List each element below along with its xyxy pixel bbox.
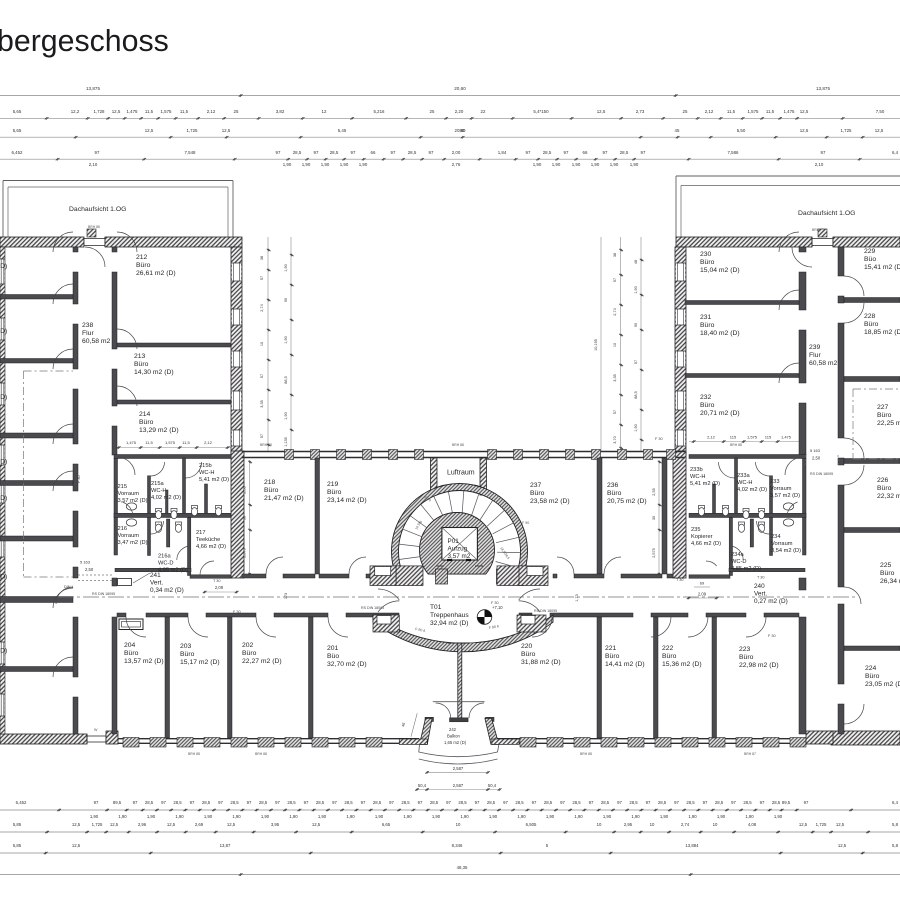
- svg-text:28,5: 28,5: [543, 150, 552, 155]
- svg-text:97: 97: [247, 800, 252, 805]
- svg-text:10: 10: [597, 822, 602, 827]
- svg-text:22,27 m2 (D): 22,27 m2 (D): [242, 658, 282, 665]
- svg-text:2,50: 2,50: [812, 456, 821, 461]
- svg-text:97: 97: [275, 800, 280, 805]
- svg-text:10: 10: [260, 342, 264, 346]
- svg-text:5,65: 5,65: [13, 109, 22, 114]
- svg-text:4,85 m2 (D): 4,85 m2 (D): [731, 566, 761, 572]
- svg-text:Luftraum: Luftraum: [447, 470, 475, 477]
- svg-text:15,41 m2 (D): 15,41 m2 (D): [864, 264, 900, 271]
- svg-text:10: 10: [613, 343, 617, 347]
- svg-text:25: 25: [430, 109, 435, 114]
- svg-text:97: 97: [391, 150, 396, 155]
- svg-text:28,5: 28,5: [743, 800, 752, 805]
- svg-text:1,90: 1,90: [284, 264, 288, 271]
- svg-text:224: 224: [865, 665, 877, 672]
- svg-text:2,74: 2,74: [260, 304, 264, 311]
- svg-text:11,5: 11,5: [145, 109, 154, 114]
- svg-text:214: 214: [139, 411, 151, 418]
- svg-text:203: 203: [180, 643, 192, 650]
- svg-text:28,5: 28,5: [408, 150, 417, 155]
- svg-text:WC-H: WC-H: [690, 474, 705, 480]
- svg-text:m2 (D): m2 (D): [0, 394, 7, 401]
- svg-text:1,90: 1,90: [634, 424, 638, 431]
- svg-text:4,02 m2 (D): 4,02 m2 (D): [151, 495, 181, 501]
- svg-text:28,5: 28,5: [629, 800, 638, 805]
- svg-text:3,57 m2 (D): 3,57 m2 (D): [770, 493, 800, 499]
- svg-text:28,5: 28,5: [430, 800, 439, 805]
- svg-text:236: 236: [607, 482, 619, 489]
- svg-text:1,728: 1,728: [94, 109, 106, 114]
- svg-text:F 30: F 30: [77, 475, 81, 483]
- svg-text:18,40 m2 (D): 18,40 m2 (D): [700, 330, 740, 337]
- svg-text:2,587: 2,587: [453, 766, 464, 771]
- svg-text:2,55: 2,55: [652, 488, 656, 495]
- svg-text:233: 233: [770, 479, 780, 485]
- svg-text:20,60: 20,60: [454, 86, 466, 91]
- svg-text:F 30: F 30: [655, 437, 663, 441]
- svg-text:Vorraum: Vorraum: [770, 486, 792, 492]
- svg-text:5,85: 5,85: [13, 822, 22, 827]
- svg-text:Büro: Büro: [607, 490, 622, 497]
- svg-text:1,90: 1,90: [340, 162, 349, 167]
- svg-text:1,73: 1,73: [575, 594, 579, 601]
- svg-text:13,875: 13,875: [86, 86, 100, 91]
- svg-text:1,90: 1,90: [321, 162, 330, 167]
- svg-text:Vorraum: Vorraum: [118, 533, 140, 539]
- svg-text:97: 97: [603, 150, 608, 155]
- svg-text:1,90: 1,90: [346, 814, 355, 819]
- svg-text:5,45: 5,45: [338, 128, 347, 133]
- svg-text:1,90: 1,90: [572, 162, 581, 167]
- svg-text:12,5: 12,5: [800, 109, 809, 114]
- svg-text:38: 38: [260, 256, 264, 260]
- svg-text:12,5: 12,5: [227, 822, 236, 827]
- svg-text:2,69: 2,69: [195, 822, 204, 827]
- svg-text:5,8: 5,8: [892, 822, 899, 827]
- svg-text:Büo: Büo: [327, 653, 339, 660]
- svg-text:115: 115: [730, 435, 737, 440]
- svg-text:1,90: 1,90: [90, 814, 99, 819]
- svg-text:30: 30: [652, 516, 656, 520]
- svg-text:1,90: 1,90: [517, 814, 526, 819]
- svg-text:22,32 m2 (D): 22,32 m2 (D): [877, 493, 900, 500]
- svg-text:11,5: 11,5: [145, 440, 153, 445]
- svg-text:1,90: 1,90: [403, 814, 412, 819]
- svg-text:69: 69: [700, 581, 705, 586]
- svg-text:2,74: 2,74: [681, 822, 690, 827]
- svg-text:226: 226: [877, 477, 889, 484]
- svg-text:Büro: Büro: [327, 489, 342, 496]
- svg-text:23,58 m2 (D): 23,58 m2 (D): [530, 498, 570, 505]
- svg-text:66: 66: [583, 150, 588, 155]
- svg-text:12: 12: [322, 109, 327, 114]
- svg-text:1,90: 1,90: [717, 814, 726, 819]
- svg-text:88,5: 88,5: [284, 376, 288, 383]
- svg-text:97: 97: [133, 800, 138, 805]
- svg-text:T01: T01: [430, 604, 442, 611]
- svg-text:1,65 m2 (D): 1,65 m2 (D): [444, 740, 467, 745]
- svg-text:97: 97: [804, 800, 809, 805]
- svg-text:215b: 215b: [199, 463, 212, 469]
- svg-text:38: 38: [613, 253, 617, 257]
- svg-text:Büro: Büro: [264, 487, 279, 494]
- svg-text:6,65: 6,65: [382, 822, 391, 827]
- svg-text:2,10: 2,10: [815, 162, 824, 167]
- svg-text:2,12: 2,12: [204, 440, 213, 445]
- svg-text:97: 97: [94, 800, 99, 805]
- svg-text:12,5: 12,5: [72, 822, 81, 827]
- svg-text:97: 97: [532, 800, 537, 805]
- svg-text:1,90: 1,90: [147, 814, 156, 819]
- svg-text:3,70: 3,70: [613, 436, 617, 443]
- svg-text:1,575: 1,575: [748, 109, 760, 114]
- svg-text:BRH 88: BRH 88: [580, 752, 592, 756]
- svg-text:2,12: 2,12: [705, 109, 714, 114]
- svg-text:1,475: 1,475: [781, 435, 792, 440]
- svg-text:1,90: 1,90: [289, 814, 298, 819]
- svg-text:13,29 m2 (D): 13,29 m2 (D): [139, 427, 179, 434]
- svg-text:5,4*150: 5,4*150: [533, 109, 549, 114]
- svg-text:227: 227: [877, 404, 889, 411]
- svg-text:1,90: 1,90: [489, 814, 498, 819]
- svg-text:4,66 m2 (D): 4,66 m2 (D): [196, 544, 226, 550]
- svg-text:6,452: 6,452: [16, 800, 27, 805]
- svg-text:173: 173: [284, 593, 288, 599]
- svg-text:WC-D: WC-D: [731, 559, 746, 565]
- svg-text:1,725: 1,725: [841, 128, 853, 133]
- svg-text:45: 45: [675, 128, 680, 133]
- svg-text:Vorraum: Vorraum: [118, 491, 140, 497]
- svg-text:228: 228: [864, 313, 876, 320]
- svg-text:2,50: 2,50: [85, 567, 94, 572]
- svg-text:1,475: 1,475: [784, 109, 796, 114]
- svg-text:Büo: Büo: [864, 256, 876, 263]
- svg-text:23,14 m2 (D): 23,14 m2 (D): [327, 497, 367, 504]
- svg-text:222: 222: [662, 645, 674, 652]
- svg-text:12,5: 12,5: [799, 822, 808, 827]
- svg-text:T 30: T 30: [676, 578, 684, 582]
- svg-text:1,90: 1,90: [591, 162, 600, 167]
- svg-text:1,135: 1,135: [284, 437, 288, 447]
- svg-text:25: 25: [234, 109, 239, 114]
- svg-text:28,5: 28,5: [601, 800, 610, 805]
- svg-text:12,2: 12,2: [71, 109, 80, 114]
- svg-text:3,95: 3,95: [271, 822, 280, 827]
- svg-text:Büro: Büro: [700, 322, 715, 329]
- svg-text:28,5: 28,5: [772, 800, 781, 805]
- svg-text:23,05 m2 (D): 23,05 m2 (D): [865, 681, 900, 688]
- svg-text:22,98 m2 (D): 22,98 m2 (D): [739, 662, 779, 669]
- svg-text:Büro: Büro: [180, 651, 195, 658]
- svg-text:97: 97: [351, 150, 356, 155]
- svg-text:218: 218: [264, 479, 276, 486]
- svg-text:28,5: 28,5: [373, 800, 382, 805]
- svg-text:97: 97: [560, 800, 565, 805]
- svg-text:97: 97: [161, 800, 166, 805]
- svg-text:2,74: 2,74: [613, 308, 617, 315]
- svg-text:3,35: 3,35: [260, 400, 264, 407]
- svg-text:12,5: 12,5: [72, 843, 81, 848]
- svg-text:97: 97: [332, 800, 337, 805]
- svg-text:Büro: Büro: [139, 419, 154, 426]
- svg-text:15,04 m2 (D): 15,04 m2 (D): [700, 267, 740, 274]
- svg-text:10: 10: [456, 822, 461, 827]
- svg-text:BRH 88: BRH 88: [452, 443, 464, 447]
- svg-text:Treppenhaus: Treppenhaus: [430, 612, 469, 619]
- svg-text:0,27 m2 (D): 0,27 m2 (D): [754, 598, 788, 605]
- svg-text:90: 90: [634, 323, 638, 327]
- svg-text:57: 57: [260, 434, 264, 438]
- svg-text:1,90: 1,90: [432, 814, 441, 819]
- svg-text:7,50: 7,50: [876, 109, 885, 114]
- svg-text:1,90: 1,90: [745, 814, 754, 819]
- svg-text:3,54 m2 (D): 3,54 m2 (D): [771, 548, 801, 554]
- svg-text:3,57 m2: 3,57 m2: [448, 553, 471, 560]
- svg-text:10: 10: [713, 822, 718, 827]
- svg-text:97: 97: [821, 150, 826, 155]
- svg-text:1,90: 1,90: [359, 162, 368, 167]
- svg-text:1,90: 1,90: [546, 814, 555, 819]
- svg-text:2,09: 2,09: [215, 585, 224, 590]
- svg-text:28,5: 28,5: [287, 800, 296, 805]
- svg-text:5 163: 5 163: [80, 560, 91, 565]
- svg-text:T 30: T 30: [213, 579, 221, 583]
- svg-text:97: 97: [617, 800, 622, 805]
- svg-text:14,30 m2 (D): 14,30 m2 (D): [134, 369, 174, 376]
- svg-text:15,17 m2 (D): 15,17 m2 (D): [180, 659, 220, 666]
- svg-text:BRH 88: BRH 88: [188, 752, 200, 756]
- svg-text:Büro: Büro: [864, 321, 879, 328]
- svg-text:2,10: 2,10: [89, 162, 98, 167]
- svg-text:1,475: 1,475: [127, 109, 139, 114]
- svg-text:W: W: [94, 728, 98, 732]
- svg-text:1,90: 1,90: [603, 814, 612, 819]
- svg-text:26,61 m2 (D): 26,61 m2 (D): [136, 270, 176, 277]
- svg-text:Vert.: Vert.: [150, 580, 163, 587]
- svg-text:97: 97: [429, 150, 434, 155]
- svg-text:RS DIN 18095: RS DIN 18095: [361, 606, 384, 610]
- svg-text:97: 97: [703, 800, 708, 805]
- svg-text:26,34 m2 (D): 26,34 m2 (D): [880, 578, 900, 585]
- svg-text:97: 97: [190, 800, 195, 805]
- svg-text:12,5: 12,5: [800, 128, 809, 133]
- svg-text:97: 97: [446, 800, 451, 805]
- svg-text:97: 97: [314, 150, 319, 155]
- svg-text:60,58 m2: 60,58 m2: [809, 360, 838, 367]
- svg-text:13,87: 13,87: [220, 843, 231, 848]
- svg-text:6,4: 6,4: [892, 150, 899, 155]
- svg-text:28,5: 28,5: [293, 150, 302, 155]
- svg-text:5,41 m2 (D): 5,41 m2 (D): [199, 477, 229, 483]
- svg-text:57: 57: [260, 374, 264, 378]
- svg-text:230: 230: [700, 251, 712, 258]
- svg-text:10,195: 10,195: [594, 339, 598, 351]
- svg-text:60,58 m2: 60,58 m2: [82, 338, 111, 345]
- svg-text:234a: 234a: [731, 552, 744, 558]
- svg-text:1,575: 1,575: [747, 435, 758, 440]
- svg-text:1,725: 1,725: [816, 822, 827, 827]
- svg-text:3,57 m2 (D): 3,57 m2 (D): [118, 498, 148, 504]
- svg-text:90: 90: [460, 128, 465, 133]
- svg-text:1,725: 1,725: [187, 128, 199, 133]
- svg-text:1,90: 1,90: [204, 814, 213, 819]
- svg-text:28,5: 28,5: [458, 800, 467, 805]
- svg-text:Büro: Büro: [877, 412, 892, 419]
- svg-text:1,575: 1,575: [161, 109, 173, 114]
- svg-text:223: 223: [739, 646, 751, 653]
- svg-text:28,5: 28,5: [316, 800, 325, 805]
- svg-text:97: 97: [760, 800, 765, 805]
- svg-text:Vert.: Vert.: [754, 591, 767, 598]
- svg-text:2,587: 2,587: [453, 783, 464, 788]
- svg-text:BRH 87: BRH 87: [744, 752, 756, 756]
- svg-text:WC-D: WC-D: [158, 561, 173, 567]
- svg-text:DIN L: DIN L: [64, 585, 74, 589]
- svg-text:4,85 m2 (D): 4,85 m2 (D): [158, 568, 188, 574]
- svg-text:Teeküche: Teeküche: [196, 537, 220, 543]
- svg-text:204: 204: [124, 642, 136, 649]
- svg-text:3,47 m2 (D): 3,47 m2 (D): [118, 540, 148, 546]
- svg-text:m2 (D): m2 (D): [0, 459, 7, 466]
- svg-text:212: 212: [136, 254, 148, 261]
- svg-text:Büro: Büro: [242, 650, 257, 657]
- svg-text:1,90: 1,90: [630, 162, 639, 167]
- svg-text:10: 10: [650, 822, 655, 827]
- svg-text:11,5: 11,5: [727, 109, 736, 114]
- svg-text:219: 219: [327, 481, 339, 488]
- svg-text:BRH 88: BRH 88: [255, 752, 267, 756]
- svg-text:4,02 m2 (D): 4,02 m2 (D): [737, 487, 767, 493]
- svg-text:12,5: 12,5: [167, 822, 176, 827]
- svg-text:97: 97: [389, 800, 394, 805]
- svg-text:28,5: 28,5: [330, 150, 339, 155]
- svg-text:6,4: 6,4: [892, 800, 899, 805]
- svg-text:97: 97: [646, 800, 651, 805]
- svg-text:97: 97: [641, 150, 646, 155]
- svg-text:97: 97: [218, 800, 223, 805]
- svg-text:Büro: Büro: [530, 490, 545, 497]
- svg-text:215: 215: [118, 484, 128, 490]
- svg-text:201: 201: [327, 645, 339, 652]
- svg-text:RS DIN 18095: RS DIN 18095: [534, 609, 557, 613]
- svg-text:12,5: 12,5: [836, 822, 845, 827]
- svg-text:50,4: 50,4: [488, 783, 497, 788]
- svg-text:6,505: 6,505: [526, 822, 537, 827]
- svg-text:225: 225: [880, 562, 892, 569]
- svg-text:97: 97: [304, 800, 309, 805]
- svg-text:18,85 m2 (D): 18,85 m2 (D): [864, 329, 900, 336]
- svg-text:97: 97: [731, 800, 736, 805]
- svg-text:66: 66: [371, 150, 376, 155]
- svg-text:m2 (D): m2 (D): [0, 263, 7, 270]
- svg-text:5,65: 5,65: [13, 128, 22, 133]
- svg-text:90: 90: [284, 298, 288, 302]
- svg-text:32,70 m2 (D): 32,70 m2 (D): [327, 661, 367, 668]
- svg-text:28,5: 28,5: [401, 800, 410, 805]
- svg-text:11,5: 11,5: [180, 109, 189, 114]
- svg-text:0,34 m2 (D): 0,34 m2 (D): [150, 587, 184, 594]
- svg-text:1,90: 1,90: [284, 336, 288, 343]
- svg-text:Büro: Büro: [700, 402, 715, 409]
- svg-text:28,5: 28,5: [173, 800, 182, 805]
- svg-text:12,5: 12,5: [838, 843, 847, 848]
- svg-text:57: 57: [613, 410, 617, 414]
- svg-text:97: 97: [475, 800, 480, 805]
- svg-text:202: 202: [242, 642, 254, 649]
- svg-text:Büro: Büro: [605, 653, 620, 660]
- svg-text:241: 241: [150, 572, 161, 579]
- svg-text:Balkon: Balkon: [447, 734, 460, 739]
- svg-text:2,575: 2,575: [652, 548, 656, 558]
- svg-text:89,5: 89,5: [782, 800, 791, 805]
- svg-text:m2 (D): m2 (D): [0, 495, 7, 502]
- svg-text:97: 97: [361, 800, 366, 805]
- svg-text:13,57 m2 (D): 13,57 m2 (D): [124, 658, 164, 665]
- svg-text:m2 (D): m2 (D): [0, 648, 7, 655]
- svg-text:28,5: 28,5: [202, 800, 211, 805]
- svg-text:22: 22: [481, 109, 486, 114]
- svg-text:1,90: 1,90: [261, 814, 270, 819]
- svg-text:BRH 88: BRH 88: [260, 443, 272, 447]
- svg-text:28,5: 28,5: [344, 800, 353, 805]
- svg-text:T 30: T 30: [757, 576, 765, 580]
- svg-text:231: 231: [700, 314, 712, 321]
- svg-text:215a: 215a: [151, 481, 164, 487]
- svg-text:1,90: 1,90: [574, 814, 583, 819]
- svg-text:217: 217: [196, 530, 206, 536]
- svg-text:97: 97: [526, 150, 531, 155]
- svg-text:1,90: 1,90: [175, 814, 184, 819]
- svg-text:28,5: 28,5: [259, 800, 268, 805]
- svg-text:RS DIN 18095: RS DIN 18095: [810, 472, 833, 476]
- svg-text:5,41 m2 (D): 5,41 m2 (D): [690, 481, 720, 487]
- svg-text:242: 242: [449, 727, 457, 732]
- svg-text:25: 25: [683, 109, 688, 114]
- svg-text:48,35: 48,35: [457, 865, 468, 870]
- svg-text:Aufzug: Aufzug: [448, 546, 468, 553]
- svg-text:1,90: 1,90: [688, 814, 697, 819]
- svg-text:8,346: 8,346: [452, 843, 463, 848]
- svg-text:1,725: 1,725: [92, 822, 103, 827]
- svg-text:2,73: 2,73: [636, 109, 645, 114]
- svg-text:BRH 88: BRH 88: [730, 443, 742, 447]
- svg-text:28,5: 28,5: [715, 800, 724, 805]
- svg-text:32,94 m2 (D): 32,94 m2 (D): [430, 620, 468, 627]
- svg-text:2,00: 2,00: [452, 150, 461, 155]
- svg-text:P01: P01: [448, 538, 460, 545]
- svg-text:1,90: 1,90: [118, 814, 127, 819]
- svg-text:Büro: Büro: [136, 262, 151, 269]
- svg-text:1,90: 1,90: [631, 814, 640, 819]
- svg-text:Dachaufsicht 1.OG: Dachaufsicht 1.OG: [69, 206, 126, 213]
- svg-text:115: 115: [765, 435, 772, 440]
- svg-text:31,88 m2 (D): 31,88 m2 (D): [521, 659, 561, 666]
- svg-text:20,71 m2 (D): 20,71 m2 (D): [700, 410, 740, 417]
- svg-text:2,95: 2,95: [624, 822, 633, 827]
- svg-text:28,5: 28,5: [686, 800, 695, 805]
- svg-text:12,5: 12,5: [222, 128, 231, 133]
- svg-text:213: 213: [134, 353, 146, 360]
- svg-text:240: 240: [754, 583, 765, 590]
- svg-text:232: 232: [700, 394, 712, 401]
- svg-text:11,5: 11,5: [766, 109, 775, 114]
- svg-text:5,85: 5,85: [13, 843, 22, 848]
- svg-text:WC-H: WC-H: [199, 470, 214, 476]
- svg-text:28,5: 28,5: [145, 800, 154, 805]
- svg-text:2,12: 2,12: [707, 435, 716, 440]
- svg-text:21,47 m2 (D): 21,47 m2 (D): [264, 495, 304, 502]
